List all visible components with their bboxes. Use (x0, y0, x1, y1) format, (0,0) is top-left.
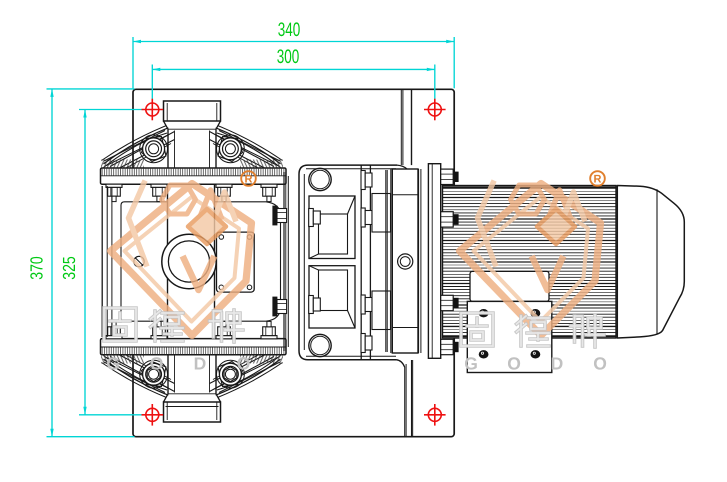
svg-text:R: R (245, 173, 253, 185)
svg-text:G: G (464, 354, 478, 374)
svg-text:G: G (106, 354, 120, 374)
svg-text:340: 340 (278, 19, 301, 41)
svg-text:370: 370 (27, 256, 47, 280)
svg-text:300: 300 (277, 46, 300, 68)
svg-text:D: D (194, 354, 207, 374)
svg-text:325: 325 (59, 256, 79, 280)
svg-text:D: D (551, 354, 564, 374)
svg-text:O: O (150, 354, 164, 374)
svg-text:O: O (507, 354, 521, 374)
svg-text:O: O (237, 354, 251, 374)
svg-text:R: R (594, 173, 602, 185)
svg-text:O: O (593, 354, 607, 374)
